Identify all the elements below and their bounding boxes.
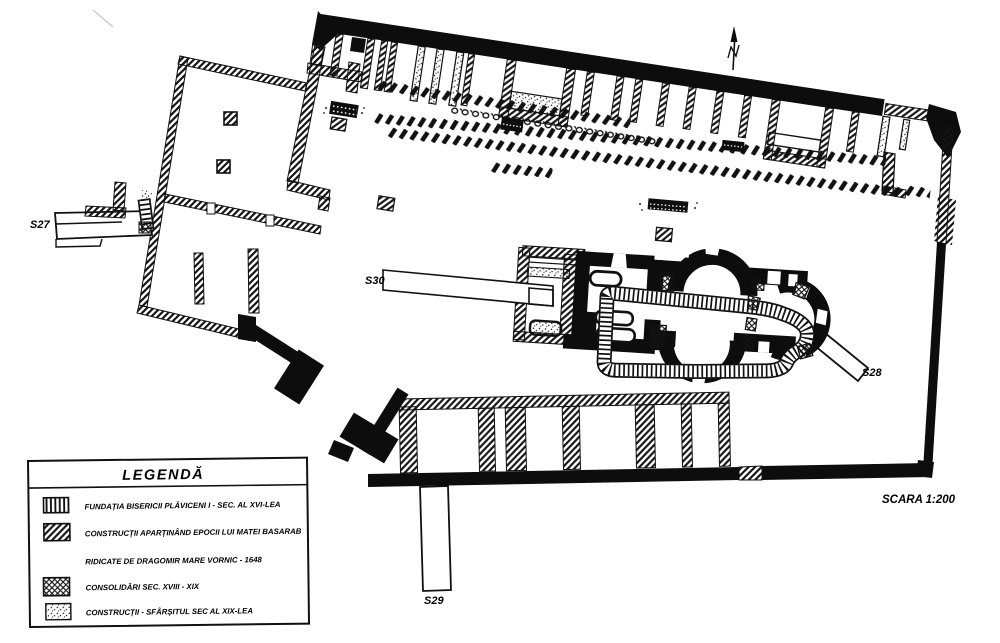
svg-text:LEGENDĂ: LEGENDĂ [122,465,204,484]
svg-text:S28: S28 [862,367,882,379]
svg-text:S27: S27 [30,219,50,231]
svg-text:CONSOLIDĂRI SEC. XVIII - XIX: CONSOLIDĂRI SEC. XVIII - XIX [86,582,200,592]
svg-text:S30: S30 [365,275,385,287]
svg-text:SCARA 1:200: SCARA 1:200 [882,494,956,506]
svg-text:S29: S29 [424,595,444,607]
